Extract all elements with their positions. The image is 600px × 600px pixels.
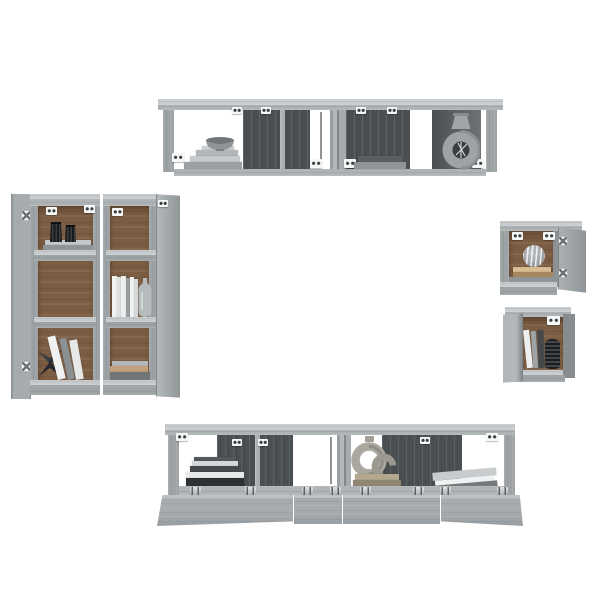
mounting-bracket bbox=[543, 232, 555, 240]
book-stack bbox=[110, 372, 150, 380]
mounting-bracket bbox=[232, 439, 242, 446]
black-ribbed-vase bbox=[545, 339, 560, 369]
tall-wall-cabinet-left bbox=[10, 192, 105, 402]
compartment-divider bbox=[280, 110, 285, 169]
mounting-bracket bbox=[258, 439, 268, 446]
cabinet-bottom-rail bbox=[179, 486, 504, 495]
cabinet-bottom-rail bbox=[174, 169, 486, 176]
mounting-bracket bbox=[84, 205, 95, 213]
mounting-bracket bbox=[547, 316, 560, 325]
open-door bbox=[156, 194, 180, 397]
donut-vase bbox=[442, 113, 480, 170]
mounting-bracket bbox=[512, 232, 523, 240]
mounting-bracket bbox=[387, 107, 397, 114]
cabinet-top-edge bbox=[103, 199, 159, 206]
book-stack bbox=[184, 162, 242, 169]
fold-down-door bbox=[294, 495, 342, 524]
mounting-bracket bbox=[486, 433, 498, 441]
shelf-bracket bbox=[172, 153, 184, 162]
fold-down-door bbox=[441, 495, 523, 526]
fold-down-door bbox=[157, 495, 293, 526]
tall-wall-cabinet-right bbox=[100, 192, 185, 404]
flap-hinge bbox=[497, 487, 508, 495]
striped-round-vase bbox=[523, 245, 545, 267]
mounting-bracket bbox=[158, 200, 168, 207]
mounting-bracket bbox=[261, 107, 271, 114]
flap-hinge bbox=[190, 487, 201, 495]
cabinet-side-panel-left bbox=[30, 206, 38, 394]
small-wall-cabinet-lower bbox=[493, 302, 578, 384]
mounting-bracket bbox=[46, 207, 57, 215]
small-wall-cabinet-upper bbox=[495, 215, 595, 300]
cabinet-side-panel-left bbox=[103, 206, 110, 394]
shelf-front-edge bbox=[34, 255, 96, 261]
shelf-bracket bbox=[310, 159, 322, 168]
mounting-bracket bbox=[112, 208, 123, 216]
cabinet-side-panel-left bbox=[163, 110, 174, 172]
door-hinge-plate bbox=[559, 237, 567, 245]
cabinet-bottom-edge bbox=[30, 385, 100, 395]
mounting-bracket bbox=[356, 107, 366, 114]
decor-bowl bbox=[205, 136, 235, 152]
cabinet-bottom-edge bbox=[500, 287, 557, 295]
dark-back-panel bbox=[243, 110, 310, 169]
bottle-vase bbox=[138, 278, 152, 317]
shelf-front-edge bbox=[106, 322, 156, 328]
door-hinge-plate bbox=[559, 269, 567, 277]
shelf-front-edge bbox=[106, 255, 156, 261]
fold-down-door bbox=[343, 495, 440, 524]
shelf-front-edge bbox=[34, 322, 96, 328]
flap-hinge bbox=[413, 487, 424, 495]
cabinet-side-panel-right bbox=[93, 206, 100, 394]
top-wall-cabinet-pair bbox=[155, 96, 505, 180]
book-stack bbox=[186, 478, 244, 486]
flap-hinge bbox=[360, 487, 371, 495]
cabinet-side-panel-right bbox=[563, 314, 575, 378]
cabinet-side-panel-left bbox=[168, 435, 179, 495]
book-stack bbox=[354, 162, 406, 169]
mounting-bracket bbox=[420, 437, 430, 444]
cabinet-side-panel-right bbox=[504, 435, 515, 495]
black-ribbed-vase bbox=[65, 225, 76, 242]
open-door bbox=[503, 313, 523, 382]
flap-hinge bbox=[245, 487, 256, 495]
flap-hinge bbox=[302, 487, 313, 495]
leaning-book bbox=[537, 330, 544, 368]
black-ribbed-vase bbox=[50, 222, 62, 242]
cabinet-side-panel-left bbox=[500, 231, 509, 289]
cabinet-side-panel-right bbox=[486, 110, 497, 172]
mounting-bracket bbox=[232, 107, 242, 114]
flap-hinge bbox=[440, 487, 451, 495]
product-photo-scene bbox=[0, 0, 600, 600]
mounting-bracket bbox=[176, 433, 188, 441]
bottom-wall-cabinet-pair bbox=[155, 420, 527, 530]
flap-hinge bbox=[330, 487, 341, 495]
open-door-edge bbox=[330, 437, 332, 484]
cabinet-bottom-edge bbox=[103, 385, 159, 395]
